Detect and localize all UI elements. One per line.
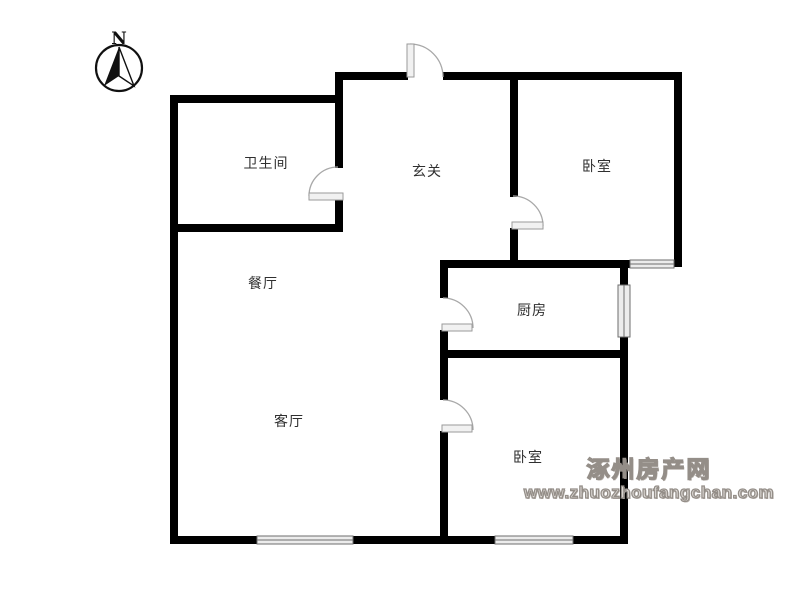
wall-segment bbox=[674, 72, 682, 267]
wall-segment bbox=[620, 260, 628, 285]
wall-segment bbox=[353, 536, 495, 544]
wall-segment bbox=[440, 358, 448, 400]
bedroom-north-door-leaf bbox=[512, 222, 543, 229]
wall-segment bbox=[170, 95, 343, 103]
wall-segment bbox=[335, 72, 343, 168]
room-label-bedroom-north: 卧室 bbox=[582, 156, 612, 176]
bedroom-south-door-leaf bbox=[442, 425, 472, 432]
wall-segment bbox=[620, 337, 628, 544]
north-arrow: N bbox=[96, 29, 142, 91]
room-label-bedroom-south: 卧室 bbox=[513, 447, 543, 467]
floorplan-drawing: N bbox=[0, 0, 800, 600]
room-label-entry-hall: 玄关 bbox=[412, 161, 442, 181]
wall-segment bbox=[440, 260, 630, 268]
wall-segment bbox=[170, 95, 178, 543]
wall-segment bbox=[170, 224, 343, 232]
room-label-dining-room: 餐厅 bbox=[248, 273, 278, 293]
room-label-living-room: 客厅 bbox=[274, 411, 304, 431]
compass-needle-light bbox=[119, 47, 134, 86]
plan-geometry bbox=[170, 44, 682, 544]
floorplan-canvas: N 卫生间 玄关 卧室 餐厅 厨房 客厅 卧室 涿州房产网 www.zhuozh… bbox=[0, 0, 800, 600]
bathroom-door-leaf bbox=[309, 193, 343, 200]
wall-segment bbox=[170, 536, 257, 544]
wall-segment bbox=[443, 72, 682, 80]
wall-segment bbox=[510, 72, 518, 197]
entrance-door-arc bbox=[410, 44, 443, 77]
kitchen-door-leaf bbox=[442, 324, 472, 331]
wall-segment bbox=[440, 431, 448, 544]
room-label-bathroom: 卫生间 bbox=[244, 153, 289, 173]
wall-segment bbox=[440, 260, 448, 298]
compass-needle-dark bbox=[104, 47, 119, 86]
entrance-door-leaf bbox=[407, 44, 414, 77]
bathroom-door-arc bbox=[309, 167, 338, 196]
wall-segment bbox=[573, 536, 628, 544]
room-label-kitchen: 厨房 bbox=[517, 300, 547, 320]
wall-segment bbox=[440, 350, 628, 358]
wall-segment bbox=[335, 72, 408, 80]
